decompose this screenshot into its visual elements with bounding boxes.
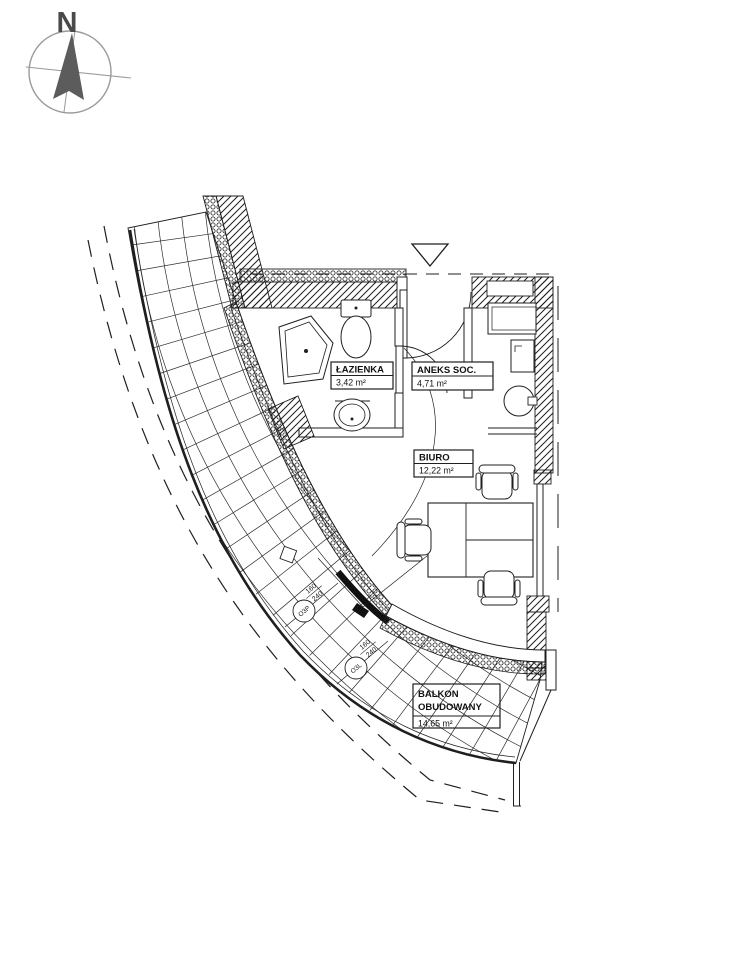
north-wall-hatch xyxy=(233,282,406,308)
balcony-east-wall xyxy=(546,650,556,690)
north-wall-insulation xyxy=(240,269,406,282)
biuro-area: 12,22 m² xyxy=(419,466,454,476)
chair-top[interactable] xyxy=(476,465,518,499)
balkon-name-line2: OBUDOWANY xyxy=(418,702,483,713)
label-lazienka: ŁAZIENKA 3,42 m² xyxy=(331,362,393,389)
toilet-flush-button xyxy=(355,307,358,310)
north-label: N xyxy=(57,7,78,39)
bathroom-wall-stub-top xyxy=(395,308,403,346)
kitchen-counter xyxy=(488,303,536,334)
compass: N xyxy=(26,7,131,113)
north-wall xyxy=(233,269,553,308)
entrance xyxy=(397,244,471,358)
bathroom-door-leaf[interactable] xyxy=(396,346,403,393)
entrance-arrow-icon xyxy=(412,244,448,266)
north-arrow-icon xyxy=(53,33,84,100)
toilet-bowl xyxy=(341,316,371,358)
north-wall-niche xyxy=(487,281,533,296)
washbasin-drain xyxy=(351,418,354,421)
label-aneks: ANEKS SOC. 4,71 m² xyxy=(412,362,493,390)
chair-bottom[interactable] xyxy=(478,571,520,605)
shower-drain xyxy=(304,349,308,353)
aneks-name: ANEKS SOC. xyxy=(417,365,476,376)
east-wall-hatch xyxy=(535,277,553,473)
lazienka-name: ŁAZIENKA xyxy=(336,365,384,376)
chair-left[interactable] xyxy=(397,519,431,561)
lazienka-area: 3,42 m² xyxy=(336,378,366,388)
balkon-area: 14,65 m² xyxy=(418,719,453,729)
east-window-jamb-top xyxy=(534,470,551,484)
office-furniture xyxy=(397,465,533,605)
label-biuro: BIURO 12,22 m² xyxy=(414,450,473,477)
biuro-name: BIURO xyxy=(419,453,450,464)
floor-plan: O3P 160 240 O3L 160 240 ŁAZIE xyxy=(0,0,736,976)
round-basin-tap xyxy=(528,397,537,405)
east-window-jamb-bottom xyxy=(527,596,549,612)
balkon-name-line1: BALKON xyxy=(418,689,459,700)
kitchen-sink-unit xyxy=(511,340,534,372)
kitchenette-fixtures xyxy=(488,303,537,434)
aneks-area: 4,71 m² xyxy=(417,379,447,389)
